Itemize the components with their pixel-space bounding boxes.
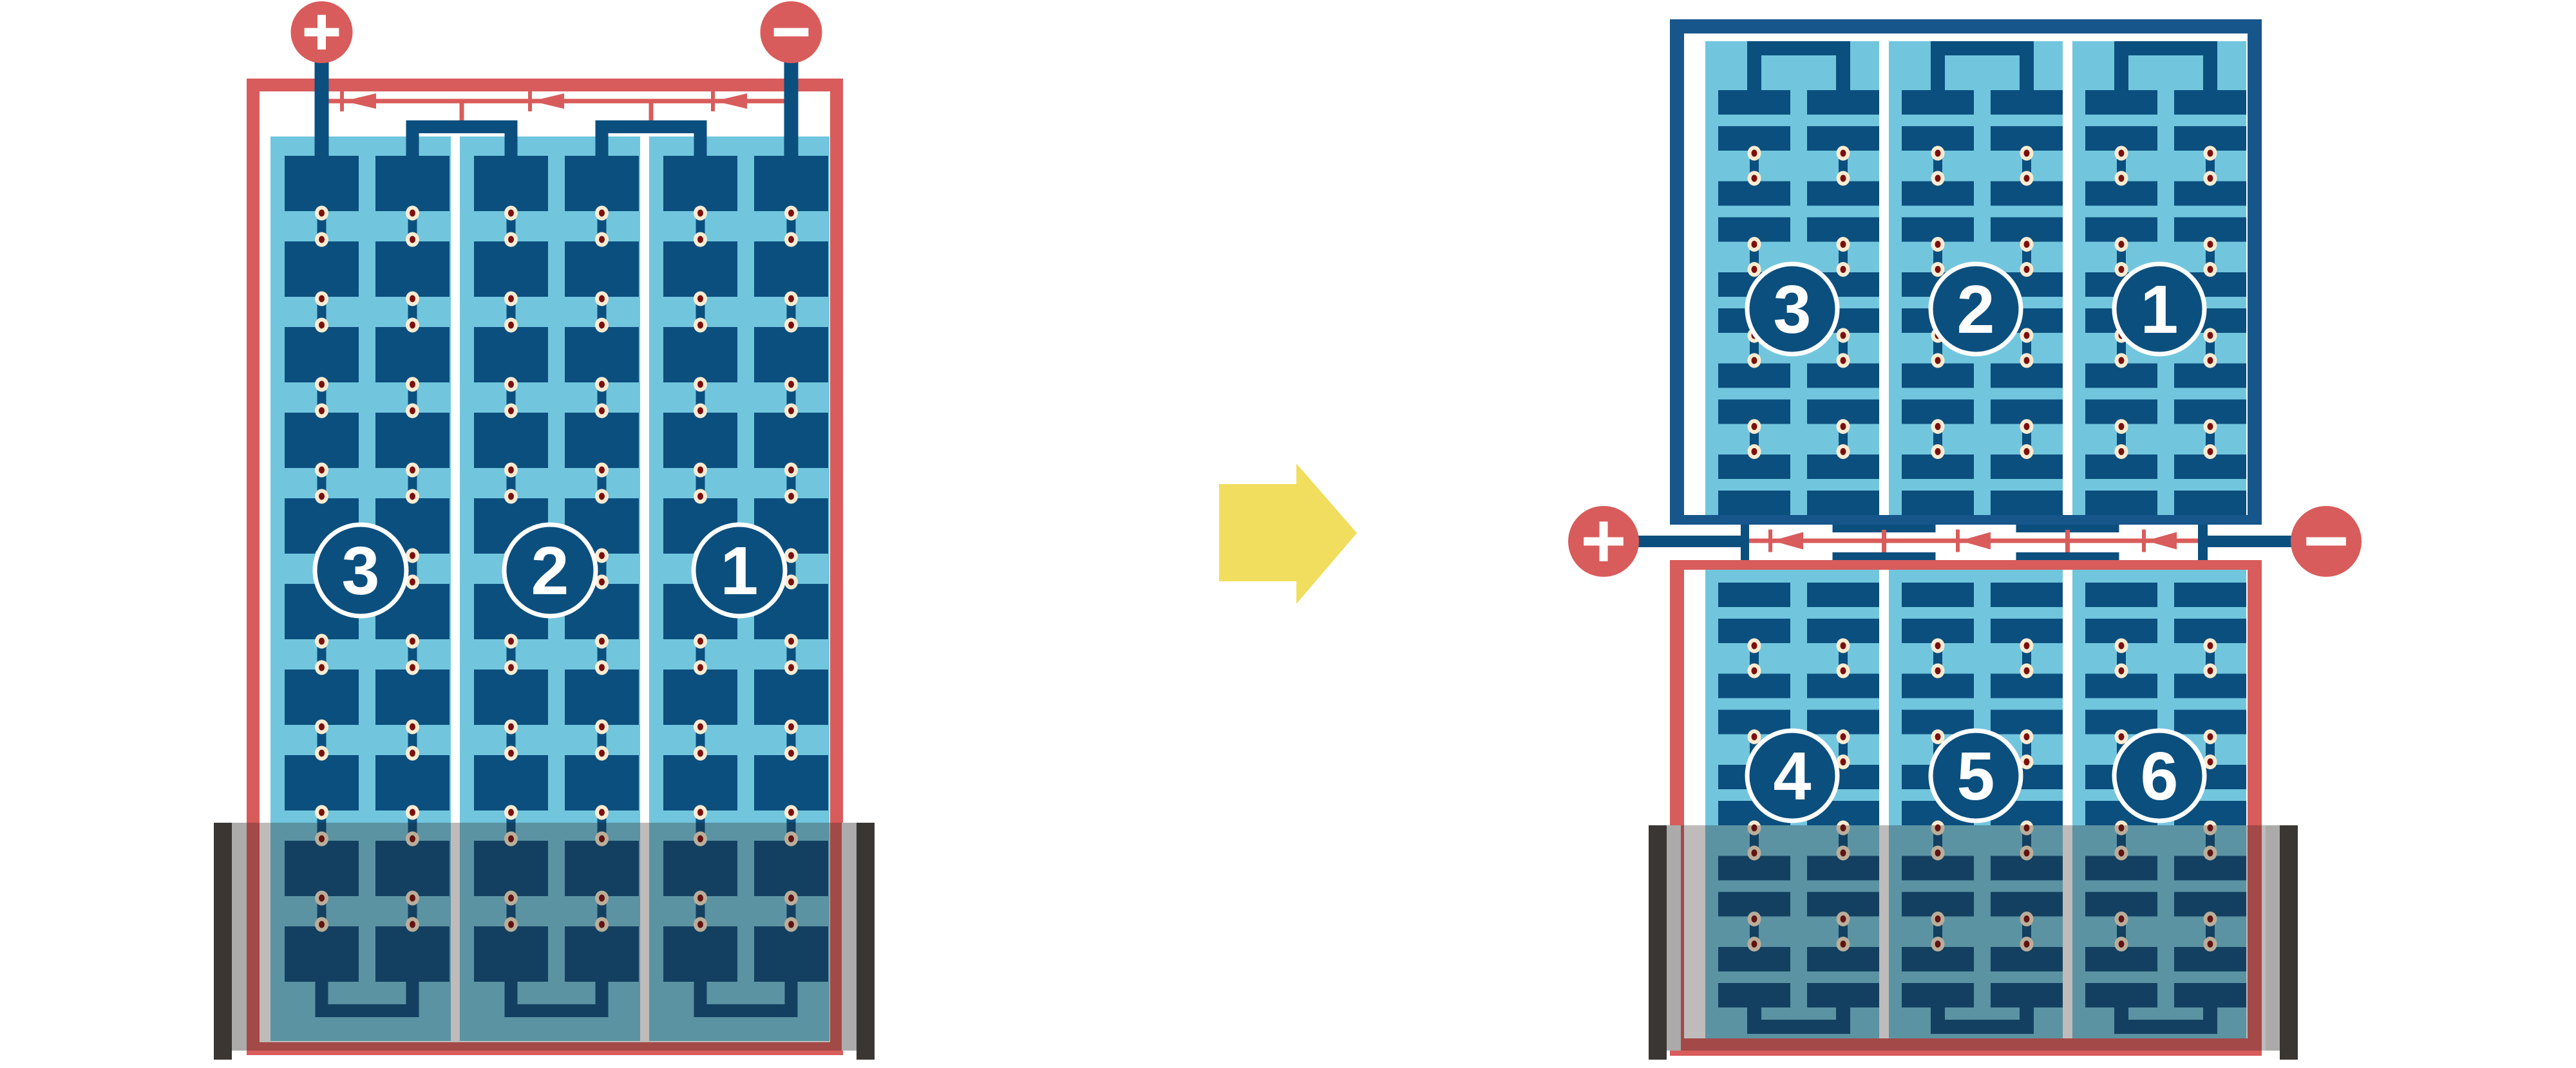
solar-cell bbox=[285, 755, 359, 810]
shade-glass bbox=[214, 823, 875, 1051]
solder-joint-center-icon bbox=[697, 322, 703, 329]
plus-icon bbox=[1600, 521, 1608, 561]
bypass-diode-bar-icon bbox=[528, 91, 532, 111]
solder-joint-center-icon bbox=[2208, 668, 2213, 675]
bypass-diode-arrow-icon bbox=[532, 93, 564, 109]
solder-joint-center-icon bbox=[2024, 150, 2030, 157]
bypass-diode-circuit bbox=[321, 91, 791, 129]
solder-joint-center-icon bbox=[1752, 241, 1757, 248]
solder-joint-center-icon bbox=[508, 381, 514, 388]
shade-rail-dark bbox=[1649, 825, 1667, 1060]
shade-glass bbox=[1649, 825, 2298, 1051]
negative-terminal: − bbox=[2291, 506, 2362, 577]
solar-cell bbox=[565, 670, 639, 725]
diode-tap-stub bbox=[1882, 530, 1886, 552]
solder-joint-center-icon bbox=[599, 467, 605, 474]
string-number-label: 5 bbox=[1957, 738, 1995, 814]
solder-joint-center-icon bbox=[508, 493, 514, 500]
solar-cell bbox=[285, 670, 359, 725]
solder-joint-center-icon bbox=[697, 750, 703, 757]
solder-joint-center-icon bbox=[410, 664, 415, 671]
solder-joint-center-icon bbox=[1752, 733, 1757, 740]
half-cut-cell bbox=[1902, 583, 1974, 607]
solar-cell bbox=[474, 241, 548, 297]
solder-joint-center-icon bbox=[599, 638, 605, 645]
solder-joint-center-icon bbox=[2024, 357, 2030, 364]
solder-joint-center-icon bbox=[508, 664, 514, 671]
solder-joint-center-icon bbox=[1752, 175, 1757, 182]
solder-joint-center-icon bbox=[599, 381, 605, 388]
solder-joint-center-icon bbox=[2119, 423, 2125, 430]
string-number-label: 2 bbox=[531, 533, 569, 609]
string-number-label: 4 bbox=[1774, 738, 1812, 814]
solar-cell bbox=[565, 327, 639, 382]
solder-joint-center-icon bbox=[1752, 448, 1757, 455]
string-number-label: 1 bbox=[2141, 272, 2179, 348]
solder-joint-center-icon bbox=[2119, 150, 2125, 157]
solder-joint-center-icon bbox=[508, 210, 514, 217]
solder-joint-center-icon bbox=[410, 381, 415, 388]
solar-cell bbox=[285, 413, 359, 468]
solar-cell bbox=[754, 670, 828, 725]
solder-joint-center-icon bbox=[410, 210, 415, 217]
solder-joint-center-icon bbox=[2119, 448, 2125, 455]
solder-joint-center-icon bbox=[599, 295, 605, 303]
solder-joint-center-icon bbox=[697, 467, 703, 474]
solder-joint-center-icon bbox=[410, 467, 415, 474]
bypass-diode-bar-icon bbox=[1956, 530, 1960, 552]
string-number-label: 6 bbox=[2141, 738, 2179, 814]
junction-tab-bottom bbox=[2016, 552, 2119, 560]
solar-cell bbox=[754, 241, 828, 297]
negative-lead-wire bbox=[2202, 536, 2293, 547]
solder-joint-center-icon bbox=[2024, 758, 2030, 765]
positive-terminal: + bbox=[1568, 506, 1639, 577]
solder-joint-center-icon bbox=[599, 552, 605, 559]
solder-joint-center-icon bbox=[410, 322, 415, 329]
bypass-diode-bar-icon bbox=[2142, 530, 2146, 552]
solder-joint-center-icon bbox=[599, 664, 605, 671]
half-cut-cell bbox=[2085, 90, 2157, 115]
solder-joint-center-icon bbox=[508, 322, 514, 329]
solder-joint-center-icon bbox=[2024, 266, 2030, 273]
solder-joint-center-icon bbox=[508, 724, 514, 731]
solder-joint-center-icon bbox=[1935, 423, 1941, 430]
solar-cell bbox=[754, 327, 828, 382]
shade-rail-dark bbox=[214, 823, 232, 1060]
half-cut-cell bbox=[1902, 90, 1974, 115]
left-panel: +−321 bbox=[214, 1, 875, 1060]
solder-joint-center-icon bbox=[410, 579, 415, 586]
solder-joint-center-icon bbox=[2208, 733, 2213, 740]
solder-joint-center-icon bbox=[599, 236, 605, 243]
transform-arrow bbox=[1219, 464, 1357, 604]
solder-joint-center-icon bbox=[410, 295, 415, 303]
solder-joint-center-icon bbox=[2119, 241, 2125, 248]
solder-joint-center-icon bbox=[319, 638, 325, 645]
solar-cell bbox=[474, 327, 548, 382]
solder-joint-center-icon bbox=[788, 664, 794, 671]
solder-joint-center-icon bbox=[319, 236, 325, 243]
solder-joint-center-icon bbox=[788, 638, 794, 645]
solar-cell bbox=[663, 670, 737, 725]
solder-joint-center-icon bbox=[1935, 357, 1941, 364]
solar-cell bbox=[375, 670, 450, 725]
solder-joint-center-icon bbox=[410, 750, 415, 757]
solder-joint-center-icon bbox=[1841, 266, 1846, 273]
solar-cell bbox=[474, 413, 548, 468]
solder-joint-center-icon bbox=[319, 381, 325, 388]
solder-joint-center-icon bbox=[1841, 150, 1846, 157]
solder-joint-center-icon bbox=[319, 322, 325, 329]
solder-joint-center-icon bbox=[508, 467, 514, 474]
solder-joint-center-icon bbox=[410, 638, 415, 645]
solder-joint-center-icon bbox=[697, 493, 703, 500]
solder-joint-center-icon bbox=[319, 295, 325, 303]
solder-joint-center-icon bbox=[319, 809, 325, 816]
half-cut-cell bbox=[1807, 583, 1879, 607]
solar-cell bbox=[663, 241, 737, 297]
solar-cell bbox=[474, 156, 548, 211]
solar-cell bbox=[375, 755, 450, 810]
half-cut-cell bbox=[1718, 583, 1790, 607]
solder-joint-center-icon bbox=[319, 408, 325, 415]
shade-rail-light bbox=[2266, 825, 2280, 1051]
diagram-stage: +−321 321 +− 456 bbox=[0, 0, 2576, 1068]
solar-module-wiring-diagram: +−321 321 +− 456 bbox=[0, 0, 2576, 1068]
shade-rail-light bbox=[232, 823, 247, 1051]
positive-lead-wire bbox=[1638, 536, 1748, 547]
half-cut-cell bbox=[2174, 491, 2246, 515]
solar-cell bbox=[663, 327, 737, 382]
solder-joint-center-icon bbox=[1841, 241, 1846, 248]
solder-joint-center-icon bbox=[410, 408, 415, 415]
solar-cell bbox=[474, 670, 548, 725]
solar-cell bbox=[375, 327, 450, 382]
solder-joint-center-icon bbox=[2208, 150, 2213, 157]
solder-joint-center-icon bbox=[2208, 423, 2213, 430]
solder-joint-center-icon bbox=[599, 724, 605, 731]
solder-joint-center-icon bbox=[2119, 357, 2125, 364]
shade-rail-light bbox=[842, 823, 857, 1051]
solder-joint-center-icon bbox=[697, 295, 703, 303]
solar-cell bbox=[663, 755, 737, 810]
solder-joint-center-icon bbox=[410, 724, 415, 731]
solar-cell bbox=[754, 413, 828, 468]
solder-joint-center-icon bbox=[2024, 668, 2030, 675]
solder-joint-center-icon bbox=[1935, 241, 1941, 248]
solar-cell bbox=[565, 241, 639, 297]
solder-joint-center-icon bbox=[1935, 266, 1941, 273]
string-number-label: 1 bbox=[721, 533, 759, 609]
solder-joint-center-icon bbox=[788, 295, 794, 303]
solder-joint-center-icon bbox=[2024, 332, 2030, 339]
bypass-diode-bar-icon bbox=[711, 91, 715, 111]
right-panel-top-half: 321 bbox=[1670, 19, 2262, 525]
shade-rail-dark bbox=[2280, 825, 2298, 1060]
solar-cell bbox=[375, 156, 450, 211]
solar-cell bbox=[754, 156, 828, 211]
solder-joint-center-icon bbox=[319, 493, 325, 500]
bypass-diode-bar-icon bbox=[340, 91, 344, 111]
half-cut-cell bbox=[2174, 90, 2246, 115]
solar-cell bbox=[663, 156, 737, 211]
solder-joint-center-icon bbox=[508, 236, 514, 243]
solder-joint-center-icon bbox=[2208, 357, 2213, 364]
solder-joint-center-icon bbox=[697, 809, 703, 816]
solar-cell bbox=[375, 241, 450, 297]
solder-joint-center-icon bbox=[319, 724, 325, 731]
half-cut-cell bbox=[1991, 90, 2063, 115]
solar-cell bbox=[285, 241, 359, 297]
bypass-diode-arrow-icon bbox=[715, 93, 747, 109]
junction-tab-bottom bbox=[1833, 552, 1936, 560]
shade-overlay bbox=[214, 823, 875, 1060]
solder-joint-center-icon bbox=[788, 381, 794, 388]
half-cut-cell bbox=[1718, 90, 1790, 115]
half-cut-cell bbox=[1991, 491, 2063, 515]
solder-joint-center-icon bbox=[788, 236, 794, 243]
solder-joint-center-icon bbox=[2119, 668, 2125, 675]
half-cut-cell bbox=[2085, 583, 2157, 607]
solder-joint-center-icon bbox=[788, 322, 794, 329]
solder-joint-center-icon bbox=[788, 408, 794, 415]
solder-joint-center-icon bbox=[1841, 733, 1846, 740]
solder-joint-center-icon bbox=[319, 664, 325, 671]
solder-joint-center-icon bbox=[788, 809, 794, 816]
string-number-label: 2 bbox=[1957, 272, 1995, 348]
solder-joint-center-icon bbox=[1841, 448, 1846, 455]
solder-joint-center-icon bbox=[1841, 758, 1846, 765]
solder-joint-center-icon bbox=[410, 552, 415, 559]
frame-top bbox=[247, 79, 843, 91]
right-arrow-icon bbox=[1219, 464, 1357, 604]
solder-joint-center-icon bbox=[319, 210, 325, 217]
shade-rail-light bbox=[1667, 825, 1681, 1051]
solder-joint-center-icon bbox=[599, 579, 605, 586]
solar-cell bbox=[285, 156, 359, 211]
half-cut-cell bbox=[1991, 583, 2063, 607]
solder-joint-center-icon bbox=[2208, 332, 2213, 339]
solder-joint-center-icon bbox=[2024, 241, 2030, 248]
negative-terminal: − bbox=[761, 1, 822, 63]
solder-joint-center-icon bbox=[599, 750, 605, 757]
solder-joint-center-icon bbox=[1935, 448, 1941, 455]
solder-joint-center-icon bbox=[410, 809, 415, 816]
solder-joint-center-icon bbox=[599, 493, 605, 500]
solder-joint-center-icon bbox=[1935, 175, 1941, 182]
solder-joint-center-icon bbox=[1841, 175, 1846, 182]
shade-rail-dark bbox=[857, 823, 875, 1060]
solder-joint-center-icon bbox=[697, 408, 703, 415]
solder-joint-center-icon bbox=[508, 809, 514, 816]
bypass-diode-bar-icon bbox=[1768, 530, 1772, 552]
solder-joint-center-icon bbox=[788, 552, 794, 559]
solder-joint-center-icon bbox=[788, 210, 794, 217]
string-number-label: 3 bbox=[1774, 272, 1812, 348]
solder-joint-center-icon bbox=[788, 579, 794, 586]
solder-joint-center-icon bbox=[1752, 266, 1757, 273]
minus-icon bbox=[2306, 538, 2346, 546]
solder-joint-center-icon bbox=[2119, 733, 2125, 740]
solder-joint-center-icon bbox=[2024, 423, 2030, 430]
solder-joint-center-icon bbox=[2119, 175, 2125, 182]
half-cut-cell bbox=[1807, 90, 1879, 115]
solder-joint-center-icon bbox=[2024, 448, 2030, 455]
solar-cell bbox=[375, 413, 450, 468]
solder-joint-center-icon bbox=[1752, 357, 1757, 364]
solder-joint-center-icon bbox=[2208, 642, 2213, 650]
half-cut-cell bbox=[2174, 583, 2246, 607]
solder-joint-center-icon bbox=[2208, 241, 2213, 248]
solder-joint-center-icon bbox=[697, 210, 703, 217]
solder-joint-center-icon bbox=[599, 809, 605, 816]
solder-joint-center-icon bbox=[1752, 668, 1757, 675]
solder-joint-center-icon bbox=[1841, 642, 1846, 650]
solder-joint-center-icon bbox=[2024, 733, 2030, 740]
solder-joint-center-icon bbox=[319, 467, 325, 474]
frame-bottom-bar bbox=[1670, 515, 2262, 525]
frame-right bbox=[2248, 19, 2262, 525]
solder-joint-center-icon bbox=[1752, 423, 1757, 430]
half-cut-cell bbox=[1718, 491, 1790, 515]
solder-joint-center-icon bbox=[697, 664, 703, 671]
solder-joint-center-icon bbox=[1841, 332, 1846, 339]
solder-joint-center-icon bbox=[1752, 150, 1757, 157]
solder-joint-center-icon bbox=[788, 493, 794, 500]
bypass-diode-arrow-icon bbox=[344, 93, 376, 109]
solder-joint-center-icon bbox=[599, 322, 605, 329]
solder-joint-center-icon bbox=[2024, 642, 2030, 650]
solder-joint-center-icon bbox=[599, 408, 605, 415]
solder-joint-center-icon bbox=[2208, 175, 2213, 182]
solar-cell bbox=[663, 413, 737, 468]
solder-joint-center-icon bbox=[697, 724, 703, 731]
minus-icon bbox=[774, 28, 809, 37]
bypass-diode-arrow-icon bbox=[1772, 532, 1803, 550]
solar-cell bbox=[565, 156, 639, 211]
solder-joint-center-icon bbox=[697, 638, 703, 645]
frame-top-bar bbox=[1670, 560, 2262, 570]
solder-joint-center-icon bbox=[319, 750, 325, 757]
solder-joint-center-icon bbox=[508, 408, 514, 415]
solar-cell bbox=[565, 755, 639, 810]
solder-joint-center-icon bbox=[788, 724, 794, 731]
solder-joint-center-icon bbox=[697, 236, 703, 243]
solder-joint-center-icon bbox=[2208, 266, 2213, 273]
solder-joint-center-icon bbox=[1841, 423, 1846, 430]
solder-joint-center-icon bbox=[2208, 758, 2213, 765]
string-number-label: 3 bbox=[342, 533, 380, 609]
solar-cell bbox=[474, 755, 548, 810]
solder-joint-center-icon bbox=[1935, 642, 1941, 650]
solder-joint-center-icon bbox=[410, 236, 415, 243]
solder-joint-center-icon bbox=[1935, 733, 1941, 740]
half-cut-cell bbox=[2085, 491, 2157, 515]
bypass-diode-arrow-icon bbox=[1960, 532, 1991, 550]
solder-joint-center-icon bbox=[1841, 357, 1846, 364]
diode-tap-stub bbox=[2065, 530, 2070, 552]
solder-joint-center-icon bbox=[2024, 175, 2030, 182]
solder-joint-center-icon bbox=[697, 381, 703, 388]
solder-joint-center-icon bbox=[508, 295, 514, 303]
solder-joint-center-icon bbox=[788, 467, 794, 474]
solder-joint-center-icon bbox=[410, 493, 415, 500]
solder-joint-center-icon bbox=[599, 210, 605, 217]
solar-cell bbox=[285, 327, 359, 382]
solder-joint-center-icon bbox=[788, 750, 794, 757]
frame-left bbox=[1670, 19, 1684, 525]
positive-terminal: + bbox=[291, 1, 353, 63]
solder-joint-center-icon bbox=[1752, 642, 1757, 650]
solder-joint-center-icon bbox=[508, 638, 514, 645]
solder-joint-center-icon bbox=[1935, 150, 1941, 157]
solder-joint-center-icon bbox=[2208, 448, 2213, 455]
half-cut-cell bbox=[1902, 491, 1974, 515]
bypass-diode-arrow-icon bbox=[2146, 532, 2177, 550]
solder-joint-center-icon bbox=[1935, 668, 1941, 675]
solar-cell bbox=[754, 755, 828, 810]
frame-top bbox=[1670, 19, 2262, 33]
half-cut-cell bbox=[1807, 491, 1879, 515]
solder-joint-center-icon bbox=[508, 750, 514, 757]
solder-joint-center-icon bbox=[2119, 642, 2125, 650]
right-panel-shade bbox=[1649, 825, 2298, 1060]
solar-cell bbox=[565, 413, 639, 468]
plus-icon bbox=[317, 15, 326, 50]
solder-joint-center-icon bbox=[2119, 266, 2125, 273]
solder-joint-center-icon bbox=[1841, 668, 1846, 675]
